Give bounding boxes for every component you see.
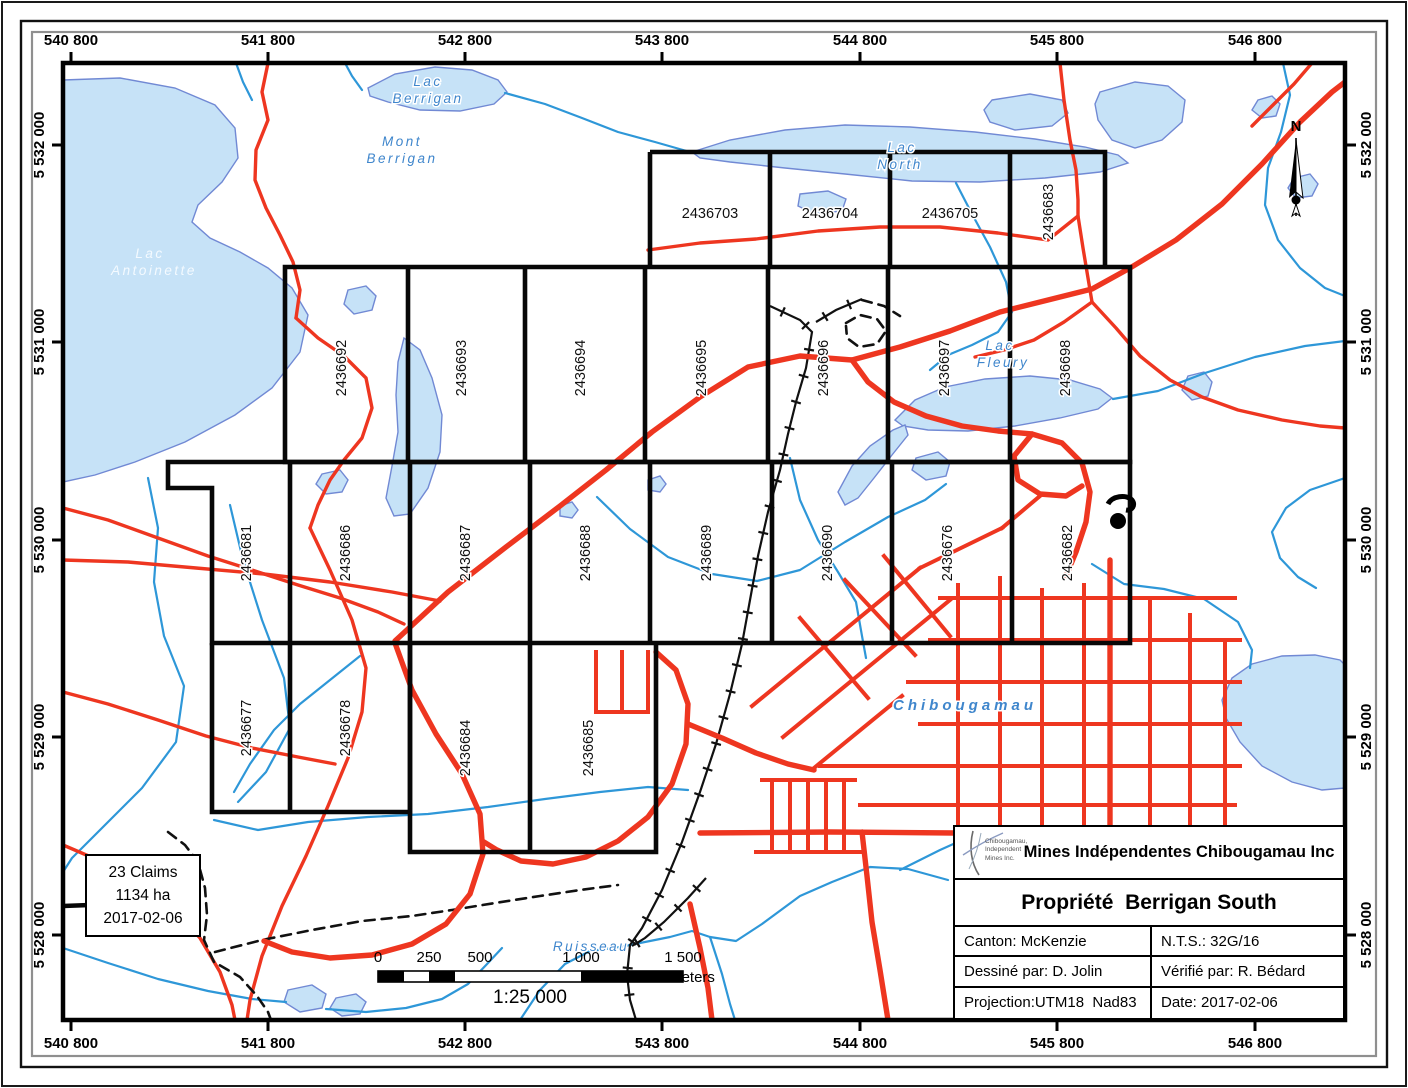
canton-cell: Canton: McKenzie <box>955 927 1150 957</box>
projection-cell: Projection:UTM18 Nad83 <box>955 988 1150 1018</box>
northing-label: 5 530 000 <box>1358 507 1375 574</box>
scalebar-segment <box>581 971 683 982</box>
claims-count: 23 Claims <box>109 861 178 884</box>
claim-number-label: 2436704 <box>802 206 858 222</box>
place-label: Antoinette <box>110 263 197 278</box>
claim-number-label: 2436688 <box>578 525 594 581</box>
claims-area: 1134 ha <box>116 884 171 907</box>
place-label: Berrigan <box>392 91 463 106</box>
north-arrow-letter: N <box>1291 118 1302 135</box>
claim-number-label: 2436695 <box>694 340 710 396</box>
mine-symbol-icon <box>1110 513 1126 529</box>
company-name: Mines Indépendentes Chibougamau Inc <box>1015 843 1343 862</box>
claim-number-label: 2436705 <box>922 206 978 222</box>
scale-ratio: 1:25 000 <box>493 987 567 1008</box>
place-label: Fleury <box>977 355 1030 370</box>
claim-number-label: 2436678 <box>338 700 354 756</box>
claim-number-label: 2436684 <box>458 720 474 776</box>
claim-number-label: 2436703 <box>682 206 738 222</box>
map-page: LacBerriganMontBerriganLacAntoinetteLacN… <box>0 0 1408 1088</box>
company-logo-icon: Chibougamau, Independent Mines Inc. <box>959 829 1015 877</box>
scalebar-segment <box>455 971 581 982</box>
title-block-grid: Canton: McKenzie N.T.S.: 32G/16 Dessiné … <box>955 927 1343 1018</box>
place-label: Lac <box>985 338 1014 353</box>
claim-number-label: 2436677 <box>239 700 255 756</box>
claim-number-label: 2436693 <box>454 340 470 396</box>
easting-label: 543 800 <box>635 32 689 49</box>
logo-text: Chibougamau, Independent Mines Inc. <box>985 838 1027 864</box>
easting-label: 545 800 <box>1030 1035 1084 1052</box>
easting-label: 546 800 <box>1228 32 1282 49</box>
northing-label: 5 529 000 <box>31 704 48 771</box>
verified-by-cell: Vérifié par: R. Bédard <box>1150 957 1343 987</box>
place-label: Mont <box>382 134 422 149</box>
northing-label: 5 531 000 <box>1358 309 1375 376</box>
claim-number-label: 2436682 <box>1060 525 1076 581</box>
northing-label: 5 531 000 <box>31 309 48 376</box>
claim-number-label: 2436683 <box>1041 184 1057 240</box>
scalebar-segment <box>429 971 455 982</box>
claim-number-label: 2436686 <box>338 525 354 581</box>
easting-label: 546 800 <box>1228 1035 1282 1052</box>
drawn-by-cell: Dessiné par: D. Jolin <box>955 957 1150 987</box>
place-label: Lac <box>413 74 442 89</box>
railway-tick <box>623 967 633 968</box>
claim-number-label: 2436676 <box>940 525 956 581</box>
claim-number-label: 2436685 <box>581 720 597 776</box>
northing-label: 5 528 000 <box>1358 902 1375 969</box>
date-cell: Date: 2017-02-06 <box>1150 988 1343 1018</box>
northing-label: 5 528 000 <box>31 902 48 969</box>
claims-date: 2017-02-06 <box>103 907 182 930</box>
place-label: Lac <box>887 140 916 155</box>
easting-label: 545 800 <box>1030 32 1084 49</box>
easting-label: 544 800 <box>833 1035 887 1052</box>
railway-tick <box>624 994 634 995</box>
claim-number-label: 2436696 <box>816 340 832 396</box>
northing-label: 5 529 000 <box>1358 704 1375 771</box>
easting-label: 540 800 <box>44 1035 98 1052</box>
scalebar-label: 500 <box>467 949 492 966</box>
title-block: Chibougamau, Independent Mines Inc. Mine… <box>953 825 1345 1020</box>
northing-label: 5 530 000 <box>31 507 48 574</box>
easting-label: 542 800 <box>438 32 492 49</box>
easting-label: 542 800 <box>438 1035 492 1052</box>
place-label: Chibougamau <box>893 697 1037 714</box>
claim-number-label: 2436690 <box>820 525 836 581</box>
northing-label: 5 532 000 <box>1358 112 1375 179</box>
easting-label: 540 800 <box>44 32 98 49</box>
place-label: Lac <box>135 246 164 261</box>
scalebar-label: 1 000 <box>562 949 600 966</box>
claim-number-label: 2436692 <box>334 340 350 396</box>
claim-number-label: 2436689 <box>699 525 715 581</box>
claim-number-label: 2436697 <box>937 340 953 396</box>
easting-label: 543 800 <box>635 1035 689 1052</box>
scalebar-units: Meters <box>669 969 715 986</box>
scalebar-segment <box>378 971 404 982</box>
scalebar-label: 1 500 <box>664 949 702 966</box>
place-label: Berrigan <box>366 151 437 166</box>
easting-label: 541 800 <box>241 1035 295 1052</box>
map-title: Propriété Berrigan South <box>955 880 1343 927</box>
place-label: North <box>877 157 923 172</box>
claims-info-box: 23 Claims 1134 ha 2017-02-06 <box>85 854 201 937</box>
title-block-header: Chibougamau, Independent Mines Inc. Mine… <box>955 827 1343 880</box>
scalebar-label: 0 <box>374 949 382 966</box>
claim-number-label: 2436694 <box>573 340 589 396</box>
scalebar-label: 250 <box>416 949 441 966</box>
scalebar-segment <box>404 971 429 982</box>
claim-number-label: 2436698 <box>1058 340 1074 396</box>
easting-label: 541 800 <box>241 32 295 49</box>
claim-number-label: 2436681 <box>239 525 255 581</box>
northing-label: 5 532 000 <box>31 112 48 179</box>
claim-number-label: 2436687 <box>458 525 474 581</box>
nts-cell: N.T.S.: 32G/16 <box>1150 927 1343 957</box>
easting-label: 544 800 <box>833 32 887 49</box>
